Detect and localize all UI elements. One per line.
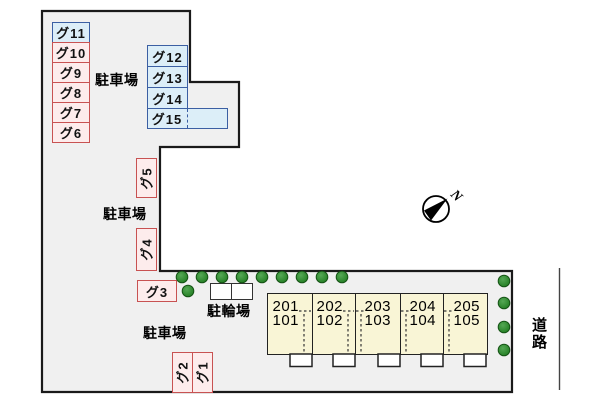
parking-space-label: グ14 [152, 89, 182, 108]
parking-space-label: グ11 [56, 23, 86, 42]
unit-lower-number: 101 [273, 312, 300, 329]
bicycle-rack-box-2 [231, 283, 253, 300]
parking-space-label: グ9 [60, 63, 82, 82]
parking-space-g3: グ3 [137, 280, 177, 302]
parking-space-label: グ8 [60, 83, 82, 102]
parking-space-g5: グ5 [136, 158, 157, 198]
parking-space-g8: グ8 [52, 82, 90, 103]
unit-divider [443, 294, 445, 355]
parking-space-label: グ4 [137, 238, 156, 260]
parking-space-g2: グ2 [172, 352, 193, 393]
site-plan: 駐車場 駐車場 駐車場 グ11 グ10 グ9 グ8 グ7 グ6 グ12 グ13 … [0, 0, 600, 400]
unit-divider [400, 294, 402, 355]
parking-space-g11: グ11 [52, 22, 90, 43]
parking-area-label-3: 駐車場 [143, 323, 187, 343]
unit-divider [312, 294, 314, 355]
parking-space-g7: グ7 [52, 102, 90, 123]
parking-space-g4: グ4 [136, 228, 157, 271]
unit-label-203-103: 203103 [365, 300, 392, 328]
unit-lower-number: 104 [410, 312, 437, 329]
parking-space-g10: グ10 [52, 42, 90, 63]
unit-lower-number: 103 [365, 312, 392, 329]
unit-label-205-105: 205105 [454, 300, 481, 328]
parking-space-g1: グ1 [192, 352, 213, 393]
bicycle-rack-box-1 [210, 283, 232, 300]
parking-space-g15: グ15 [147, 108, 228, 129]
parking-space-label: グ15 [148, 109, 186, 128]
space-divider-dashed [187, 109, 188, 128]
parking-space-g14: グ14 [147, 87, 188, 109]
parking-space-g9: グ9 [52, 62, 90, 83]
parking-space-label: グ1 [193, 361, 212, 383]
parking-space-label: グ13 [152, 68, 182, 87]
parking-space-label: グ5 [137, 167, 156, 189]
unit-lower-number: 105 [454, 312, 481, 329]
unit-label-202-102: 202102 [317, 300, 344, 328]
unit-label-201-101: 201101 [273, 300, 300, 328]
road-label: 道路 [528, 317, 549, 351]
unit-label-204-104: 204104 [410, 300, 437, 328]
unit-lower-number: 102 [317, 312, 344, 329]
bicycle-area-label: 駐輪場 [207, 301, 251, 321]
parking-area-label-2: 駐車場 [103, 204, 147, 224]
parking-space-label: グ3 [146, 282, 168, 301]
parking-space-label: グ12 [152, 47, 182, 66]
parking-area-label-1: 駐車場 [95, 70, 139, 90]
parking-space-label: グ2 [173, 361, 192, 383]
parking-space-g6: グ6 [52, 122, 90, 143]
parking-space-label: グ6 [60, 123, 82, 142]
parking-space-g13: グ13 [147, 66, 188, 88]
parking-space-label: グ7 [60, 103, 82, 122]
parking-space-g12: グ12 [147, 45, 188, 67]
parking-space-label: グ10 [56, 43, 86, 62]
building-outline: 201101 202102 203103 204104 205105 [267, 293, 489, 356]
unit-divider [355, 294, 357, 355]
